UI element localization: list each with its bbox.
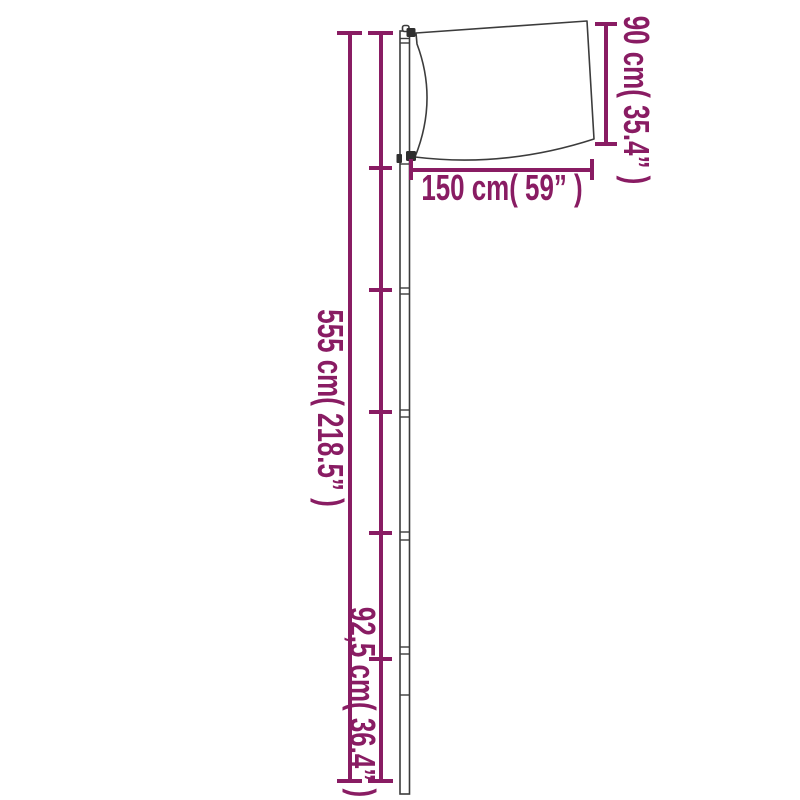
section-tick bbox=[369, 410, 392, 414]
dimension-cap bbox=[409, 159, 413, 180]
dimension-pole-height-label: 555 cm( 218.5” ) bbox=[312, 309, 348, 506]
flag-clamp-bottom bbox=[397, 154, 403, 163]
dimension-section-height-label: 92,5 cm( 36.4” ) bbox=[344, 607, 380, 797]
dimension-cap bbox=[595, 142, 617, 146]
dimension-flag-width-label: 150 cm( 59” ) bbox=[421, 170, 582, 206]
dimension-cap bbox=[337, 31, 362, 35]
section-tick bbox=[369, 531, 392, 535]
section-tick bbox=[369, 166, 392, 170]
diagram-canvas: 555 cm( 218.5” ) 92,5 cm( 36.4” ) 90 cm(… bbox=[0, 0, 800, 800]
pole bbox=[400, 31, 410, 794]
dimension-cap bbox=[590, 159, 594, 180]
flag-outline bbox=[415, 21, 594, 160]
section-tick bbox=[369, 288, 392, 292]
dimension-cap bbox=[368, 31, 393, 35]
dimension-flag-height-label: 90 cm( 35.4” ) bbox=[618, 16, 654, 185]
dimension-cap bbox=[595, 22, 617, 26]
flag-clamp-top bbox=[407, 28, 416, 37]
dimension-flag-height-line bbox=[604, 24, 608, 144]
flagpole-illustration bbox=[0, 0, 800, 800]
